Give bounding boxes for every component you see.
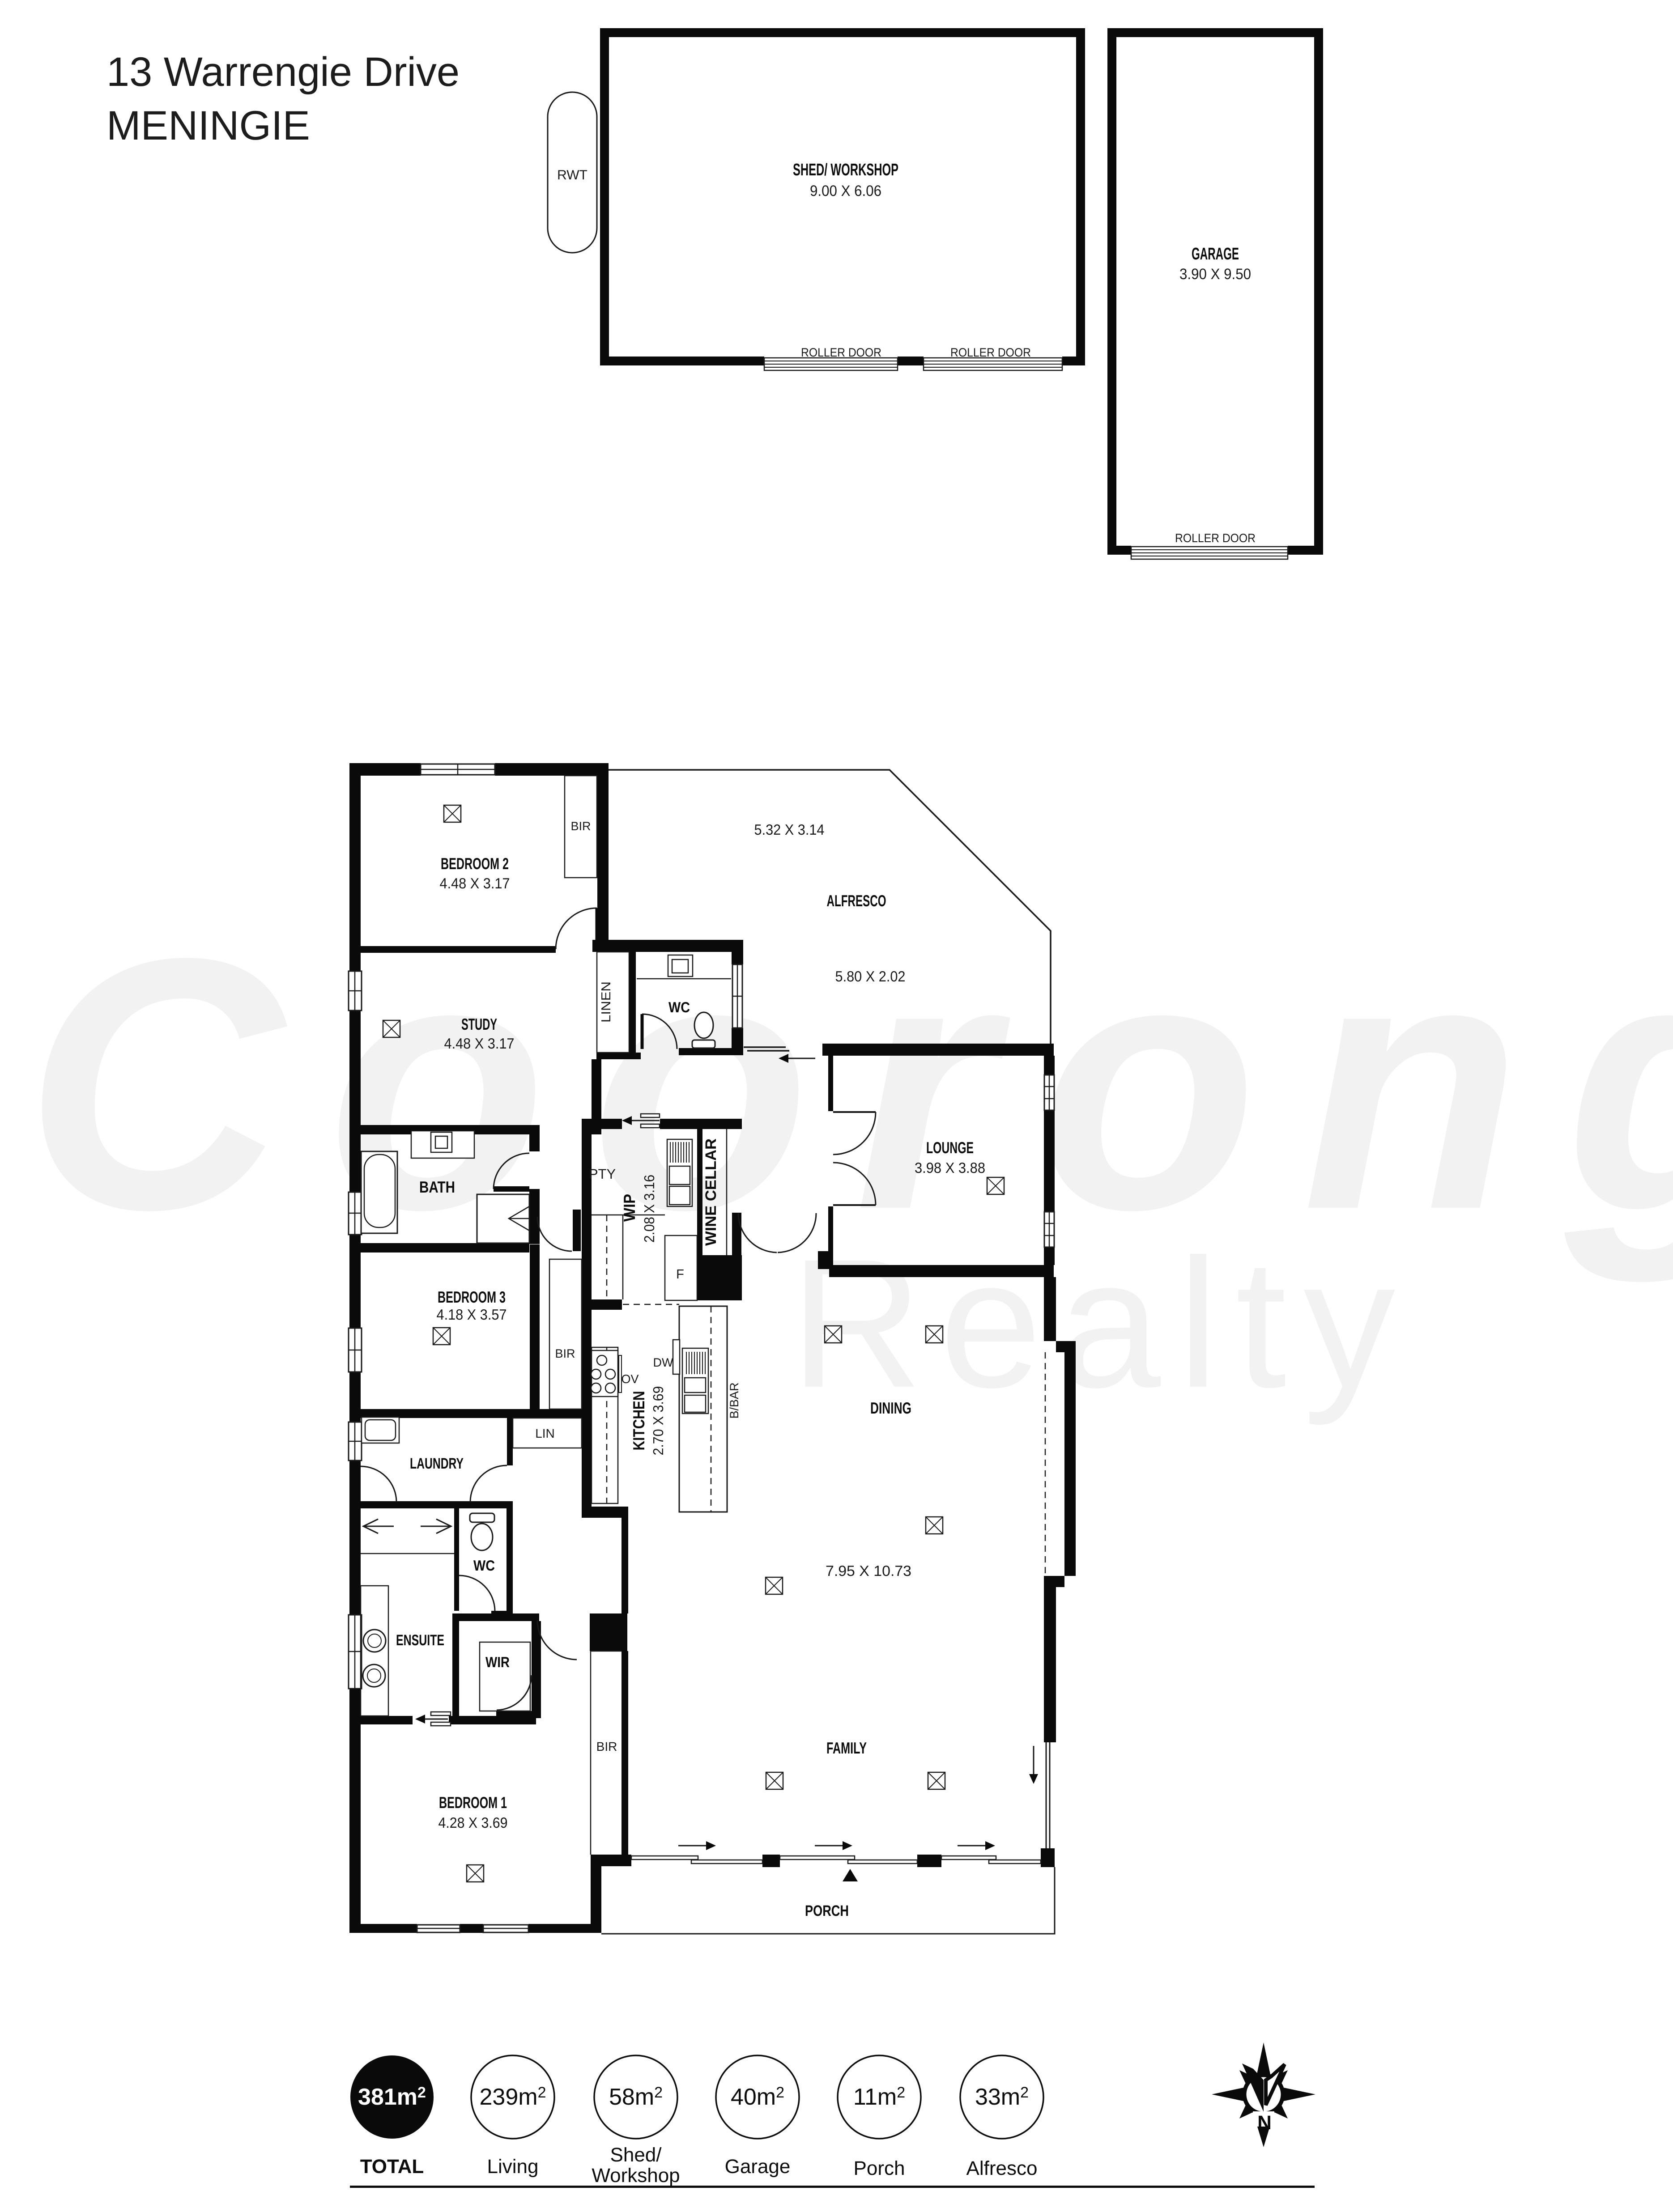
svg-text:F: F bbox=[676, 1267, 684, 1282]
svg-text:OV: OV bbox=[621, 1372, 639, 1386]
svg-text:Workshop: Workshop bbox=[592, 2165, 680, 2187]
svg-text:FAMILY: FAMILY bbox=[826, 1739, 867, 1757]
svg-text:WINE CELLAR: WINE CELLAR bbox=[702, 1138, 719, 1246]
svg-text:LOUNGE: LOUNGE bbox=[926, 1138, 974, 1157]
svg-text:SHED/ WORKSHOP: SHED/ WORKSHOP bbox=[793, 161, 898, 179]
svg-text:N: N bbox=[1257, 2112, 1272, 2134]
svg-text:2.70 X 3.69: 2.70 X 3.69 bbox=[650, 1386, 666, 1456]
svg-text:Realty: Realty bbox=[790, 1221, 1412, 1427]
svg-text:4.28 X 3.69: 4.28 X 3.69 bbox=[438, 1814, 508, 1831]
svg-text:LIN: LIN bbox=[535, 1427, 555, 1440]
svg-text:STUDY: STUDY bbox=[461, 1015, 497, 1033]
svg-text:DINING: DINING bbox=[870, 1399, 911, 1417]
svg-text:WC: WC bbox=[473, 1557, 495, 1574]
svg-text:Living: Living bbox=[487, 2156, 539, 2178]
svg-text:LAUNDRY: LAUNDRY bbox=[410, 1455, 464, 1472]
svg-text:PORCH: PORCH bbox=[805, 1902, 849, 1919]
svg-text:BEDROOM 2: BEDROOM 2 bbox=[441, 854, 509, 873]
svg-text:Garage: Garage bbox=[725, 2156, 791, 2178]
svg-text:13 Warrengie Drive: 13 Warrengie Drive bbox=[106, 49, 460, 95]
svg-text:BIR: BIR bbox=[596, 1740, 617, 1753]
svg-text:Shed/: Shed/ bbox=[610, 2144, 662, 2166]
svg-text:GARAGE: GARAGE bbox=[1192, 245, 1239, 263]
svg-text:4.48 X 3.17: 4.48 X 3.17 bbox=[440, 875, 510, 892]
svg-text:381m2: 381m2 bbox=[358, 2084, 426, 2110]
svg-text:ROLLER DOOR: ROLLER DOOR bbox=[1175, 531, 1256, 545]
svg-text:ENSUITE: ENSUITE bbox=[396, 1632, 444, 1649]
svg-text:4.18 X 3.57: 4.18 X 3.57 bbox=[437, 1306, 507, 1323]
svg-text:WIP: WIP bbox=[620, 1194, 639, 1222]
svg-text:BATH: BATH bbox=[419, 1178, 455, 1196]
svg-text:TOTAL: TOTAL bbox=[360, 2156, 424, 2178]
svg-text:BEDROOM 1: BEDROOM 1 bbox=[439, 1793, 507, 1812]
svg-text:KITCHEN: KITCHEN bbox=[630, 1391, 648, 1451]
svg-text:2.08 X 3.16: 2.08 X 3.16 bbox=[641, 1175, 657, 1243]
svg-text:5.32 X 3.14: 5.32 X 3.14 bbox=[754, 821, 825, 838]
svg-text:ROLLER DOOR: ROLLER DOOR bbox=[950, 346, 1031, 359]
svg-text:239m2: 239m2 bbox=[480, 2084, 546, 2110]
svg-text:PTY: PTY bbox=[589, 1166, 616, 1182]
svg-text:DW: DW bbox=[653, 1356, 673, 1369]
svg-text:BIR: BIR bbox=[555, 1347, 575, 1360]
svg-text:B/BAR: B/BAR bbox=[728, 1382, 741, 1418]
svg-text:7.95 X 10.73: 7.95 X 10.73 bbox=[826, 1562, 911, 1579]
svg-text:9.00 X 6.06: 9.00 X 6.06 bbox=[810, 183, 881, 200]
svg-text:5.80 X 2.02: 5.80 X 2.02 bbox=[835, 968, 906, 985]
svg-text:ALFRESCO: ALFRESCO bbox=[827, 892, 886, 910]
svg-text:WIR: WIR bbox=[485, 1654, 510, 1670]
svg-text:RWT: RWT bbox=[557, 168, 587, 183]
svg-text:Alfresco: Alfresco bbox=[966, 2157, 1038, 2179]
svg-text:WC: WC bbox=[668, 999, 690, 1015]
svg-text:LINEN: LINEN bbox=[599, 981, 613, 1023]
svg-text:3.90 X 9.50: 3.90 X 9.50 bbox=[1179, 266, 1251, 283]
svg-text:BIR: BIR bbox=[570, 819, 591, 833]
svg-text:3.98 X 3.88: 3.98 X 3.88 bbox=[915, 1159, 985, 1176]
svg-text:ROLLER DOOR: ROLLER DOOR bbox=[801, 346, 881, 359]
svg-text:Porch: Porch bbox=[854, 2157, 905, 2179]
svg-text:MENINGIE: MENINGIE bbox=[106, 103, 310, 149]
svg-text:BEDROOM 3: BEDROOM 3 bbox=[438, 1288, 506, 1306]
svg-text:4.48 X 3.17: 4.48 X 3.17 bbox=[444, 1035, 515, 1052]
